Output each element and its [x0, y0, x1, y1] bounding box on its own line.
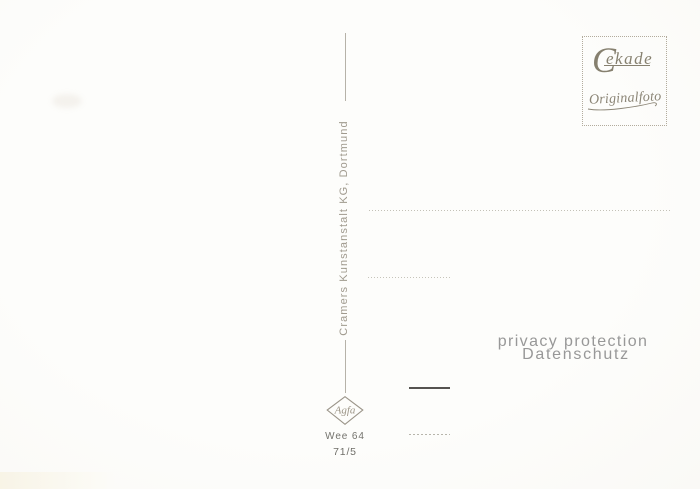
- svg-text:Agfa: Agfa: [334, 405, 356, 417]
